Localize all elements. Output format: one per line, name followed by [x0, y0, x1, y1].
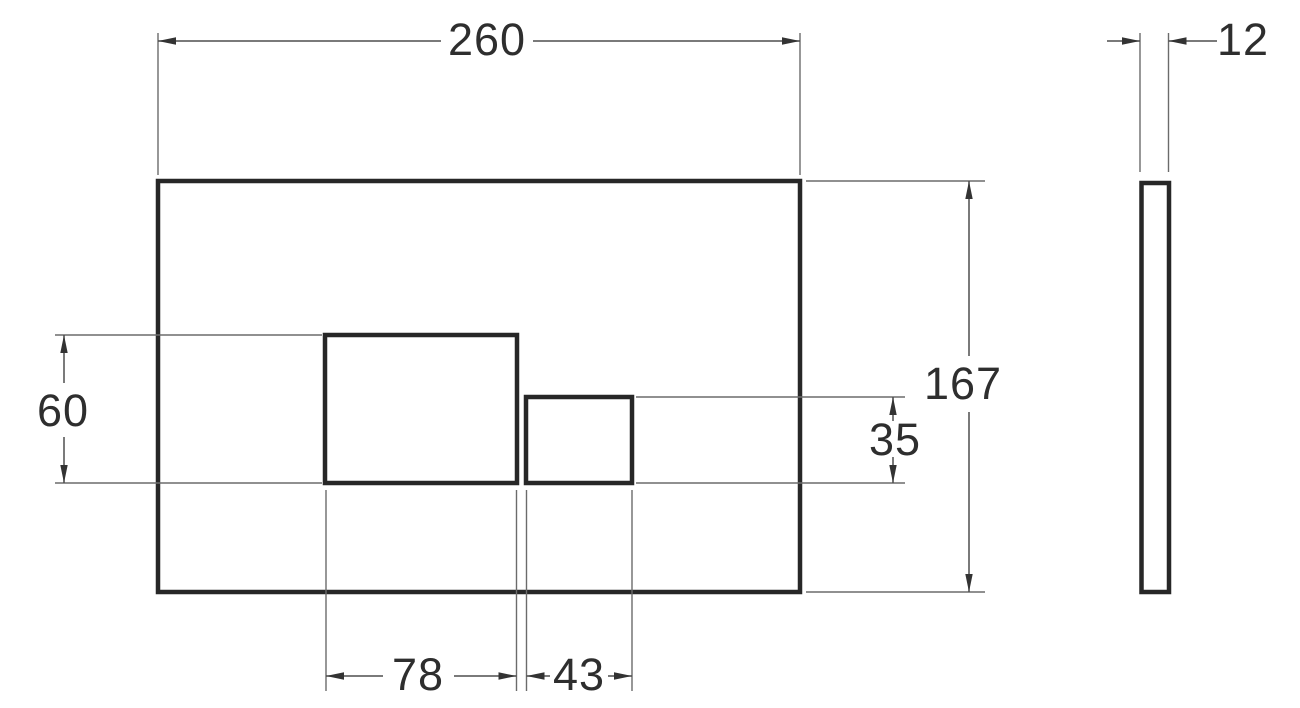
dim-thickness: 12	[1107, 14, 1269, 172]
dim-label-small-cutout-width: 43	[553, 649, 605, 700]
technical-drawing-page: 260 167 60	[0, 0, 1300, 708]
arrowhead-left-icon	[326, 672, 344, 679]
dim-overall-width: 260	[158, 14, 800, 175]
small-cutout	[526, 397, 632, 483]
arrowhead-right-icon	[614, 672, 632, 679]
dim-label-small-cutout-height: 35	[869, 414, 921, 465]
dim-label-overall-width: 260	[448, 14, 526, 65]
front-plate-outline	[158, 181, 800, 592]
front-view	[158, 181, 800, 592]
large-cutout	[325, 335, 517, 483]
arrowhead-right-icon	[499, 672, 517, 679]
arrowhead-down-icon	[889, 465, 896, 483]
dim-label-thickness: 12	[1217, 14, 1269, 65]
arrowhead-left-icon	[527, 672, 545, 679]
arrowhead-down-icon	[60, 465, 67, 483]
dim-large-cutout-width: 78	[326, 490, 517, 700]
arrowhead-right-icon	[1122, 37, 1140, 44]
arrowhead-right-icon	[782, 37, 800, 44]
arrowhead-up-icon	[60, 335, 67, 353]
arrowhead-up-icon	[889, 397, 896, 415]
dim-label-overall-height: 167	[924, 358, 1002, 409]
side-view	[1142, 183, 1170, 592]
arrowhead-left-icon	[158, 37, 176, 44]
dim-small-cutout-width: 43	[527, 490, 633, 700]
side-plate-outline	[1142, 183, 1170, 592]
dim-label-large-cutout-width: 78	[392, 649, 444, 700]
arrowhead-left-icon	[1169, 37, 1187, 44]
dim-large-cutout-height: 60	[37, 335, 322, 483]
dim-overall-height: 167	[806, 181, 1002, 592]
dim-label-large-cutout-height: 60	[37, 385, 89, 436]
arrowhead-down-icon	[965, 574, 972, 592]
dimension-drawing: 260 167 60	[0, 0, 1300, 708]
arrowhead-up-icon	[965, 181, 972, 199]
dim-small-cutout-height: 35	[636, 397, 921, 483]
